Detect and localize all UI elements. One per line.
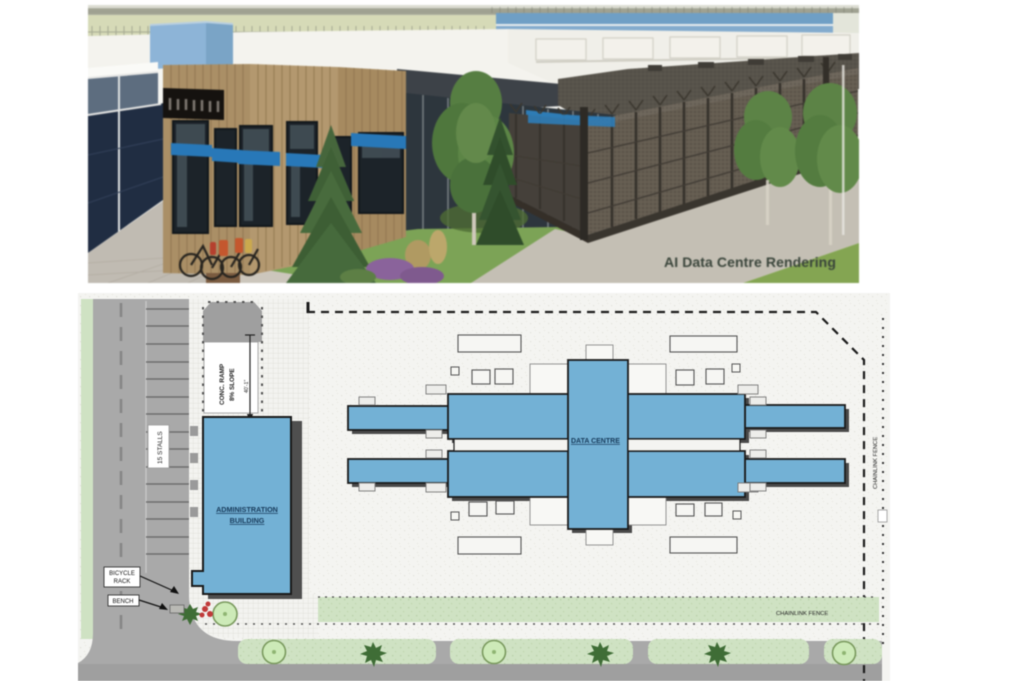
svg-text:CHAINLINK FENCE: CHAINLINK FENCE xyxy=(873,437,879,489)
svg-text:40'-1": 40'-1" xyxy=(244,380,250,393)
svg-text:CHAINLINK FENCE: CHAINLINK FENCE xyxy=(776,611,828,617)
svg-text:ADMINISTRATION: ADMINISTRATION xyxy=(216,505,278,514)
svg-text:BENCH: BENCH xyxy=(112,599,133,605)
svg-text:CONC. RAMP: CONC. RAMP xyxy=(219,363,226,405)
svg-text:RACK: RACK xyxy=(114,579,131,585)
svg-text:BICYCLE: BICYCLE xyxy=(109,571,135,577)
svg-text:15 STALLS: 15 STALLS xyxy=(157,431,164,464)
svg-text:8% SLOPE: 8% SLOPE xyxy=(229,368,236,401)
svg-text:AI Data Centre Rendering: AI Data Centre Rendering xyxy=(664,254,836,270)
svg-text:DATA CENTRE: DATA CENTRE xyxy=(571,438,620,445)
svg-text:BUILDING: BUILDING xyxy=(230,516,265,525)
